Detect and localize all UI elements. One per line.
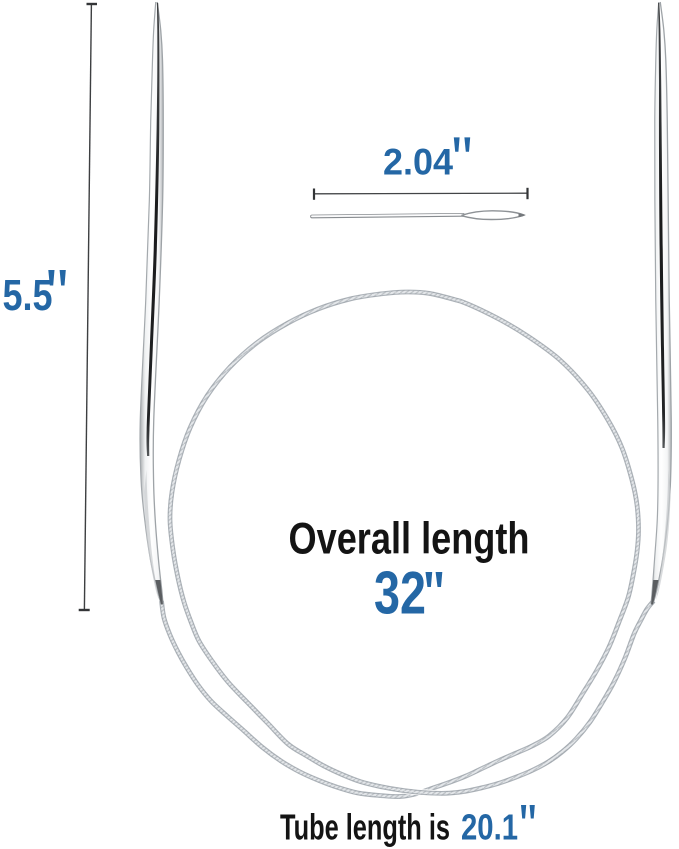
svg-text:5.5: 5.5	[3, 272, 53, 320]
svg-text:2.04: 2.04	[383, 142, 453, 183]
svg-text:Tube length is: Tube length is	[280, 807, 450, 848]
svg-text:Overall length: Overall length	[289, 515, 530, 564]
svg-text:20.1: 20.1	[461, 807, 518, 848]
svg-text:32: 32	[374, 560, 426, 627]
